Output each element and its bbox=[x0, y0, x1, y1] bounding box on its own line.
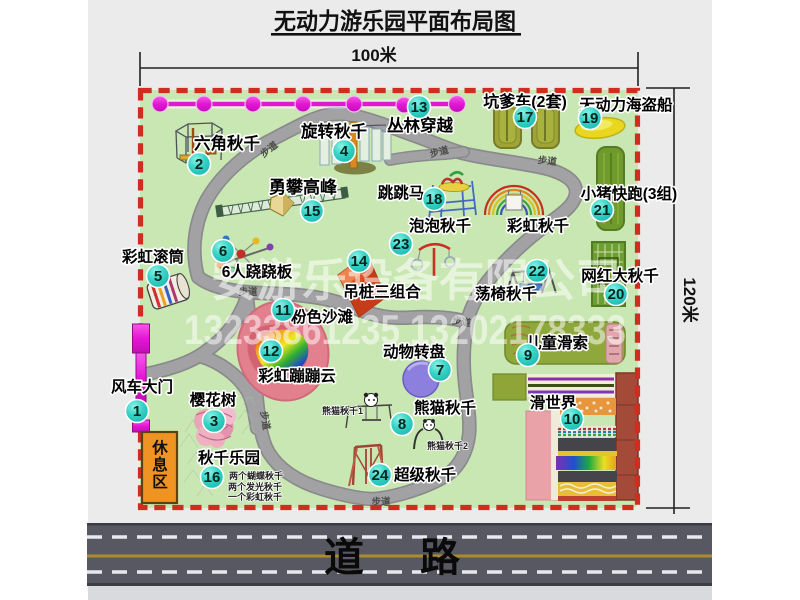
svg-text:18: 18 bbox=[426, 191, 443, 208]
svg-text:两个发光秋千: 两个发光秋千 bbox=[228, 481, 282, 492]
svg-text:100米: 100米 bbox=[351, 45, 397, 65]
svg-text:16: 16 bbox=[204, 469, 221, 486]
svg-text:勇攀高峰: 勇攀高峰 bbox=[269, 177, 338, 197]
svg-text:路: 路 bbox=[420, 536, 461, 580]
svg-text:3: 3 bbox=[210, 413, 218, 430]
svg-text:20: 20 bbox=[608, 286, 625, 303]
svg-text:熊猫秋千: 熊猫秋千 bbox=[414, 398, 477, 417]
svg-text:彩虹滚筒: 彩虹滚筒 bbox=[121, 247, 184, 266]
svg-text:彩虹蹦蹦云: 彩虹蹦蹦云 bbox=[257, 366, 336, 385]
svg-text:道: 道 bbox=[324, 536, 364, 580]
svg-text:9: 9 bbox=[524, 347, 532, 364]
svg-text:11: 11 bbox=[275, 302, 291, 319]
svg-text:19: 19 bbox=[582, 110, 599, 127]
svg-text:旋转秋千: 旋转秋千 bbox=[300, 121, 367, 141]
svg-text:6人跷跷板: 6人跷跷板 bbox=[222, 262, 293, 281]
svg-text:超级秋千: 超级秋千 bbox=[393, 465, 457, 484]
svg-text:5: 5 bbox=[154, 268, 162, 285]
svg-text:13: 13 bbox=[411, 99, 428, 116]
svg-text:熊猫秋千1: 熊猫秋千1 bbox=[322, 405, 363, 416]
svg-text:网红大秋千: 网红大秋千 bbox=[581, 266, 659, 285]
svg-text:吊桩三组合: 吊桩三组合 bbox=[343, 282, 421, 301]
svg-text:动物转盘: 动物转盘 bbox=[383, 342, 446, 361]
svg-text:息: 息 bbox=[152, 455, 168, 474]
svg-text:120米: 120米 bbox=[680, 277, 700, 323]
svg-text:14: 14 bbox=[351, 253, 368, 270]
svg-text:10: 10 bbox=[564, 411, 581, 428]
svg-text:荡椅秋千: 荡椅秋千 bbox=[475, 284, 538, 303]
svg-text:泡泡秋千: 泡泡秋千 bbox=[409, 216, 472, 235]
svg-text:六角秋千: 六角秋千 bbox=[194, 133, 260, 153]
svg-text:跳跳马: 跳跳马 bbox=[378, 183, 425, 202]
svg-text:粉色沙滩: 粉色沙滩 bbox=[291, 307, 354, 326]
svg-text:风车大门: 风车大门 bbox=[111, 377, 173, 396]
svg-text:无动力游乐园平面布局图: 无动力游乐园平面布局图 bbox=[274, 8, 516, 34]
svg-text:一个彩虹秋千: 一个彩虹秋千 bbox=[228, 491, 282, 502]
svg-text:休: 休 bbox=[151, 438, 168, 457]
svg-text:23: 23 bbox=[393, 236, 410, 253]
svg-text:步道: 步道 bbox=[537, 154, 558, 168]
svg-text:8: 8 bbox=[398, 416, 406, 433]
svg-text:17: 17 bbox=[517, 109, 534, 126]
svg-text:熊猫秋千2: 熊猫秋千2 bbox=[427, 440, 468, 451]
svg-text:15: 15 bbox=[304, 203, 321, 220]
svg-text:两个蝴蝶秋千: 两个蝴蝶秋千 bbox=[229, 470, 283, 481]
svg-text:彩虹秋千: 彩虹秋千 bbox=[506, 216, 570, 235]
svg-text:21: 21 bbox=[594, 202, 611, 219]
svg-text:6: 6 bbox=[219, 243, 227, 260]
svg-text:7: 7 bbox=[436, 362, 444, 379]
svg-text:22: 22 bbox=[529, 263, 546, 280]
svg-text:樱花树: 樱花树 bbox=[190, 390, 237, 409]
svg-text:12: 12 bbox=[263, 343, 280, 360]
svg-text:秋千乐园: 秋千乐园 bbox=[198, 448, 260, 467]
svg-text:4: 4 bbox=[340, 143, 349, 160]
svg-text:区: 区 bbox=[152, 473, 168, 491]
svg-text:2: 2 bbox=[195, 156, 203, 173]
svg-text:24: 24 bbox=[372, 467, 389, 484]
svg-text:1: 1 bbox=[133, 403, 141, 420]
